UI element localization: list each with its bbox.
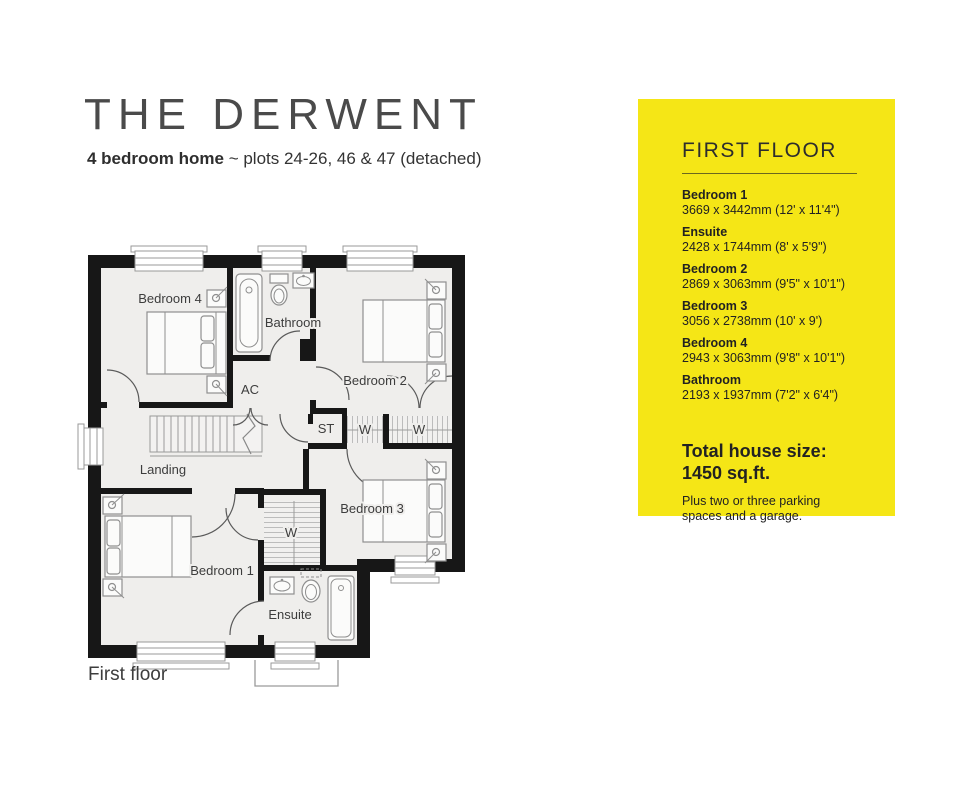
list-item: Bedroom 4 2943 x 3063mm (9'8" x 10'1"): [682, 336, 857, 366]
room-label-bedroom3: Bedroom 3: [340, 501, 404, 516]
bathtub-icon: [236, 274, 262, 352]
plan-caption: First floor: [88, 664, 167, 686]
room-name: Ensuite: [682, 225, 857, 240]
room-label-w2: W: [413, 422, 426, 437]
window: [343, 246, 417, 271]
window: [78, 424, 103, 469]
room-name: Bedroom 1: [682, 188, 857, 203]
list-item: Ensuite 2428 x 1744mm (8' x 5'9"): [682, 225, 857, 255]
room-label-st: ST: [318, 421, 335, 436]
room-dims: 3669 x 3442mm (12' x 11'4"): [682, 203, 857, 218]
list-item: Bedroom 1 3669 x 3442mm (12' x 11'4"): [682, 188, 857, 218]
room-label-bedroom1: Bedroom 1: [190, 563, 254, 578]
room-name: Bedroom 2: [682, 262, 857, 277]
panel-heading: FIRST FLOOR: [682, 139, 857, 174]
window: [131, 246, 207, 271]
room-name: Bathroom: [682, 373, 857, 388]
total-size: 1450 sq.ft.: [682, 462, 857, 484]
total-title: Total house size:: [682, 440, 857, 462]
total-house-size: Total house size: 1450 sq.ft.: [682, 440, 857, 484]
list-item: Bedroom 3 3056 x 2738mm (10' x 9'): [682, 299, 857, 329]
room-label-w3: W: [285, 525, 298, 540]
room-dims: 2193 x 1937mm (7'2" x 6'4"): [682, 388, 857, 403]
sink-icon: [270, 577, 294, 594]
room-dims: 2428 x 1744mm (8' x 5'9"): [682, 240, 857, 255]
room-label-bathroom: Bathroom: [265, 315, 321, 330]
parking-note: Plus two or three parking spaces and a g…: [682, 494, 842, 524]
subtitle-bold: 4 bedroom home: [87, 149, 224, 168]
room-dims: 3056 x 2738mm (10' x 9'): [682, 314, 857, 329]
room-dims: 2943 x 3063mm (9'8" x 10'1"): [682, 351, 857, 366]
sink-icon: [293, 273, 314, 288]
room-list: Bedroom 1 3669 x 3442mm (12' x 11'4") En…: [682, 188, 857, 403]
room-label-ac: AC: [241, 382, 259, 397]
list-item: Bedroom 2 2869 x 3063mm (9'5" x 10'1"): [682, 262, 857, 292]
room-label-bedroom4: Bedroom 4: [138, 291, 202, 306]
window: [271, 642, 319, 669]
room-label-ensuite: Ensuite: [268, 607, 311, 622]
window: [258, 246, 306, 271]
room-label-landing: Landing: [140, 462, 186, 477]
info-panel: FIRST FLOOR Bedroom 1 3669 x 3442mm (12'…: [638, 99, 895, 516]
room-label-bedroom2: Bedroom 2: [343, 373, 407, 388]
list-item: Bathroom 2193 x 1937mm (7'2" x 6'4"): [682, 373, 857, 403]
shower-icon: [328, 576, 354, 640]
room-name: Bedroom 3: [682, 299, 857, 314]
floor-plan: Bedroom 4 Bathroom Bedroom 2 AC Landing …: [50, 240, 490, 700]
room-dims: 2869 x 3063mm (9'5" x 10'1"): [682, 277, 857, 292]
subtitle-rest: ~ plots 24-26, 46 & 47 (detached): [224, 149, 482, 168]
room-name: Bedroom 4: [682, 336, 857, 351]
page-title: THE DERWENT: [84, 90, 483, 140]
page-subtitle: 4 bedroom home ~ plots 24-26, 46 & 47 (d…: [87, 149, 482, 169]
room-label-w1: W: [359, 422, 372, 437]
toilet-icon: [270, 274, 288, 305]
